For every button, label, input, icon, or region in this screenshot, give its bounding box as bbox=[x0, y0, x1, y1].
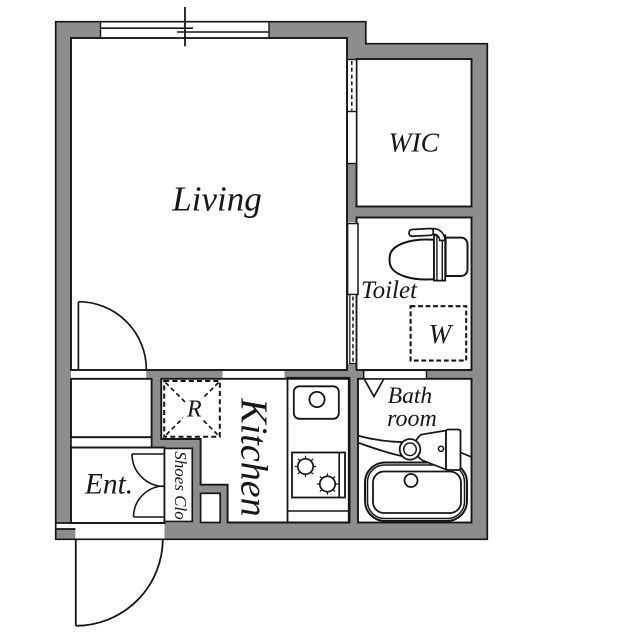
svg-text:WIC: WIC bbox=[389, 126, 440, 157]
svg-text:Kitchen: Kitchen bbox=[233, 397, 275, 516]
svg-text:Toilet: Toilet bbox=[361, 277, 418, 304]
svg-text:Living: Living bbox=[171, 179, 261, 218]
svg-text:W: W bbox=[429, 319, 454, 349]
svg-text:room: room bbox=[387, 406, 437, 432]
svg-text:Bath: Bath bbox=[388, 383, 432, 409]
svg-text:Ent.: Ent. bbox=[84, 469, 133, 501]
svg-text:Shoes Clo: Shoes Clo bbox=[171, 451, 190, 519]
svg-text:R: R bbox=[186, 397, 202, 423]
